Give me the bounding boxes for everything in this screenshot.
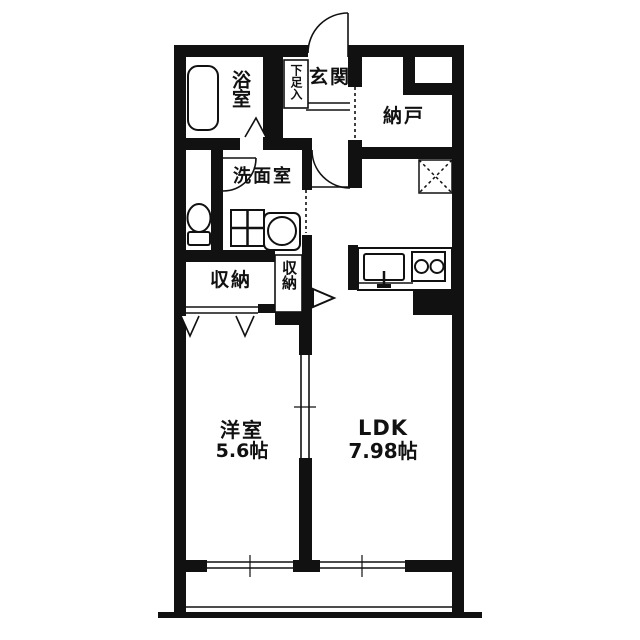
ldk-label: LDK 7.98帖 <box>330 417 436 462</box>
wall-pipespace-bottom <box>403 83 452 95</box>
wall-bottom-right <box>405 560 464 572</box>
bathtub-icon <box>188 66 218 130</box>
closet-left-label: 収納 <box>194 270 268 291</box>
western-room-label: 洋室 5.6帖 <box>192 419 292 462</box>
faucet-base-icon <box>377 284 391 288</box>
wall-left-outer <box>174 45 186 612</box>
wall-top-right <box>348 45 464 57</box>
washroom-label: 洗面室 <box>221 167 305 187</box>
wall-top-left <box>174 45 308 57</box>
background <box>0 0 640 640</box>
wall-kitchen-stub <box>348 245 358 290</box>
wall-closet-front-stub <box>258 304 275 313</box>
wall-right-outer <box>452 45 464 612</box>
bathroom-label: 浴室 <box>230 70 249 108</box>
washbasin-bowl-icon <box>268 217 296 245</box>
wall-hall-left-lower <box>302 235 312 325</box>
wall-bath-bottom-left <box>174 138 240 150</box>
wall-partition-upper <box>299 320 312 355</box>
western-room-size: 5.6帖 <box>192 441 292 462</box>
wall-entrance-divider-bottom <box>348 140 362 188</box>
storage-room-label: 納戸 <box>366 106 442 127</box>
entrance-label: 玄関 <box>304 67 356 88</box>
ldk-size: 7.98帖 <box>330 440 436 462</box>
western-room-name: 洋室 <box>192 419 292 441</box>
floorplan-drawing <box>0 0 640 640</box>
wall-wc-right <box>211 150 223 250</box>
wall-bottom-middle <box>293 560 320 572</box>
floorplan: 浴室 下足入 玄関 納戸 洗面室 収納 収納 洋室 5.6帖 LDK 7.98帖 <box>0 0 640 640</box>
wall-partition-lower <box>299 458 312 565</box>
balcony-edge <box>158 612 482 618</box>
stove-burner-left-icon <box>415 260 428 273</box>
wall-closet-top <box>174 250 275 262</box>
stove-burner-right-icon <box>431 260 444 273</box>
ldk-name: LDK <box>330 417 436 440</box>
wall-storage-bottom <box>360 147 452 159</box>
wall-bottom-left <box>174 560 207 572</box>
shoe-cabinet-label: 下足入 <box>290 64 302 100</box>
toilet-bowl-icon <box>188 204 211 232</box>
toilet-base-icon <box>188 232 210 245</box>
closet-middle-label: 収納 <box>281 260 296 290</box>
